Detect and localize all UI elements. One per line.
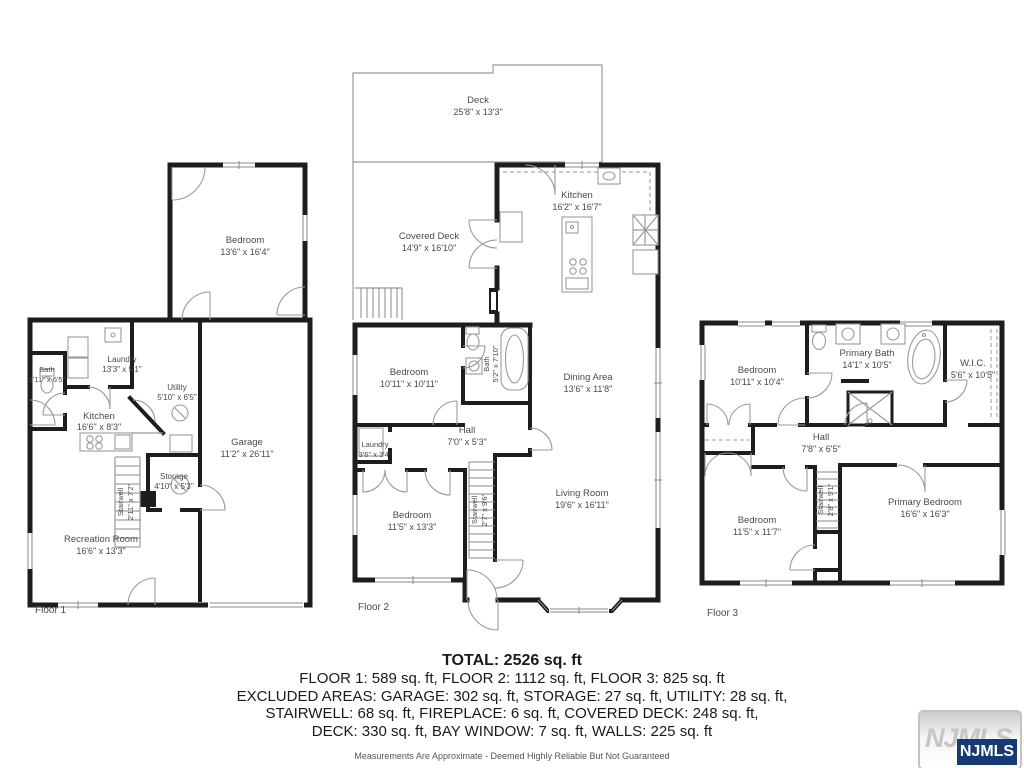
total-area: TOTAL: 2526 sq. ft [0,652,1024,670]
room-label: W.I.C. [960,358,986,369]
room-label: Hall [813,432,829,443]
room-label: Dining Area [563,372,613,383]
floor2-label: Floor 2 [358,602,390,613]
room-dims: 19'6" x 16'11" [555,500,609,510]
room-dims: 14'9" x 16'10" [402,243,456,253]
room-label: Bedroom [393,510,432,521]
floor-plan-sheet: Bedroom 13'6" x 16'4" Bath 2'11" x 6'5" … [0,0,1024,768]
room-dims: 2'11" x 6'5" [29,375,66,384]
room-label: Recreation Room [64,534,138,545]
room-label: Laundry [108,355,137,364]
room-label: Kitchen [83,411,115,422]
room-dims: 14'1" x 10'5" [842,360,891,370]
room-dims: 5'10" x 6'5" [157,393,197,402]
room-dims: 16'2" x 16'7" [552,202,601,212]
room-dims: 5'2" x 7'10" [491,345,500,382]
floor2-labels: Deck 25'8" x 13'3" Covered Deck 14'9" x … [358,95,613,613]
room-label: Hall [459,425,475,436]
room-label: Bedroom [226,235,265,246]
room-dims: 2'11" x 7'2" [126,483,135,520]
area-summary: TOTAL: 2526 sq. ft FLOOR 1: 589 sq. ft, … [0,652,1024,766]
room-dims: 7'8" x 6'5" [801,444,840,454]
room-label: Covered Deck [399,231,459,242]
room-dims: 13'6" x 11'8" [564,384,613,394]
room-label: Garage [231,437,263,448]
floor2-bath-fixtures [359,327,528,456]
room-label: Laundry [361,440,388,449]
floor3-plan: Bedroom 10'11" x 10'4" Primary Bath 14'1… [695,315,1015,625]
room-label: Utility [167,383,187,392]
room-label: Stairwell [116,487,125,516]
room-label: Deck [467,95,489,106]
room-dims: 10'11" x 10'11" [380,379,438,389]
njmls-logo: NJMLS NJMLS [918,710,1022,768]
room-label: Bedroom [738,365,777,376]
floor2-plan: Deck 25'8" x 13'3" Covered Deck 14'9" x … [345,30,675,615]
room-label: Primary Bedroom [888,497,962,508]
room-label: Storage [160,472,189,481]
room-dims: 2'8" x 9'1" [826,483,835,516]
room-dims: 13'3" x 5'1" [102,365,142,374]
disclaimer: Measurements Are Approximate - Deemed Hi… [0,748,1024,766]
room-dims: 5'6" x 10'5" [951,370,995,380]
room-dims: 16'6" x 16'3" [900,509,949,519]
floor1-plan: Bedroom 13'6" x 16'4" Bath 2'11" x 6'5" … [20,155,320,625]
floor3-label: Floor 3 [707,608,739,619]
room-dims: 4'10" x 5'3" [154,482,194,491]
room-label: Bath [482,356,491,371]
floor1-label: Floor 1 [35,605,67,616]
excluded-areas-3: DECK: 330 sq. ft, BAY WINDOW: 7 sq. ft, … [0,723,1024,741]
room-label: Stairwell [816,485,825,514]
excluded-areas-1: EXCLUDED AREAS: GARAGE: 302 sq. ft, STOR… [0,688,1024,706]
room-label: Living Room [556,488,609,499]
room-dims: 11'2" x 26'11" [220,449,273,459]
room-label: Bath [39,365,54,374]
room-dims: 11'5" x 13'3" [388,522,437,532]
room-dims: 10'11" x 10'4" [730,377,784,387]
room-dims: 25'8" x 13'3" [453,107,502,117]
excluded-areas-2: STAIRWELL: 68 sq. ft, FIREPLACE: 6 sq. f… [0,705,1024,723]
room-label: Stairwell [470,495,479,524]
room-dims: 16'6" x 13'3" [76,546,125,556]
room-label: Bedroom [390,367,429,378]
room-dims: 3'6" x 3'4" [359,450,392,459]
room-dims: 7'0" x 5'3" [447,437,486,447]
floor-areas: FLOOR 1: 589 sq. ft, FLOOR 2: 1112 sq. f… [0,670,1024,688]
floor2-kitchen-fixtures [500,168,658,292]
room-dims: 2'7" x 9'6" [480,493,489,526]
room-dims: 11'5" x 11'7" [733,527,781,537]
room-dims: 13'6" x 16'4" [220,247,269,257]
room-label: Primary Bath [840,348,895,359]
room-label: Kitchen [561,190,593,201]
room-dims: 16'6" x 8'3" [77,422,121,432]
njmls-badge: NJMLS [957,739,1017,765]
room-label: Bedroom [738,515,777,526]
floor3-labels: Bedroom 10'11" x 10'4" Primary Bath 14'1… [707,348,995,619]
